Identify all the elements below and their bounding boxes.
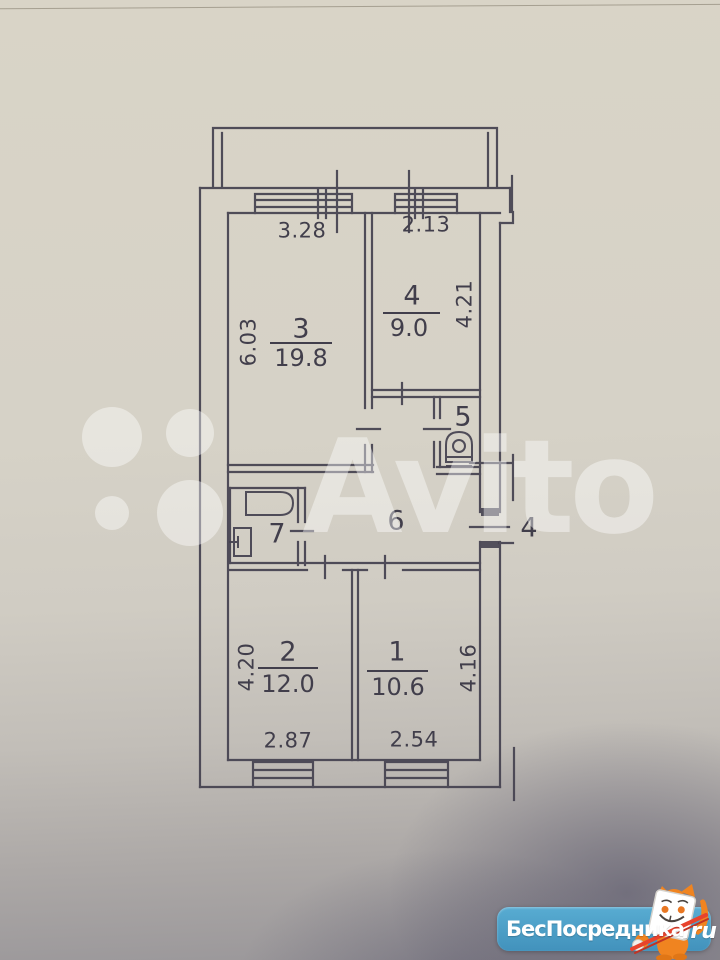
room1-area: 10.6 [371, 675, 424, 699]
room2-area: 12.0 [261, 672, 314, 696]
balcony [213, 128, 497, 186]
dim-room2-width: 2.87 [264, 731, 313, 752]
bathtub-icon [246, 492, 293, 515]
room2-fraction-line [258, 667, 318, 669]
room4-area: 9.0 [390, 316, 428, 340]
logo-site-name: БесПосредника [506, 917, 684, 941]
room7-number: 7 [268, 521, 285, 548]
avito-dot-icon [82, 407, 142, 467]
room2-number: 2 [279, 639, 296, 666]
dim-room4-width: 2.13 [402, 215, 451, 236]
dim-room4-height: 4.21 [455, 280, 476, 329]
avito-watermark-text: Avito [302, 411, 654, 563]
avito-dot-icon [157, 480, 223, 546]
room1-number: 1 [388, 639, 405, 666]
dim-room3-width: 3.28 [278, 221, 327, 242]
dim-room3-height: 6.03 [239, 318, 260, 367]
floorplan-photo: 3.28 2.13 6.03 4.21 3 19.8 4 9.0 5 6 7 4… [0, 0, 720, 960]
avito-dot-icon [166, 409, 214, 457]
room4-number: 4 [403, 283, 420, 310]
dim-room2-height: 4.20 [237, 643, 258, 692]
sink-icon [229, 528, 251, 556]
logo-domain-suffix: .ru [682, 919, 717, 944]
dim-room1-width: 2.54 [390, 730, 439, 751]
room1-fraction-line [367, 670, 428, 672]
dim-room1-height: 4.16 [459, 644, 480, 693]
avito-dot-icon [95, 496, 129, 530]
room3-area: 19.8 [274, 346, 327, 370]
room3-number: 3 [292, 316, 309, 343]
